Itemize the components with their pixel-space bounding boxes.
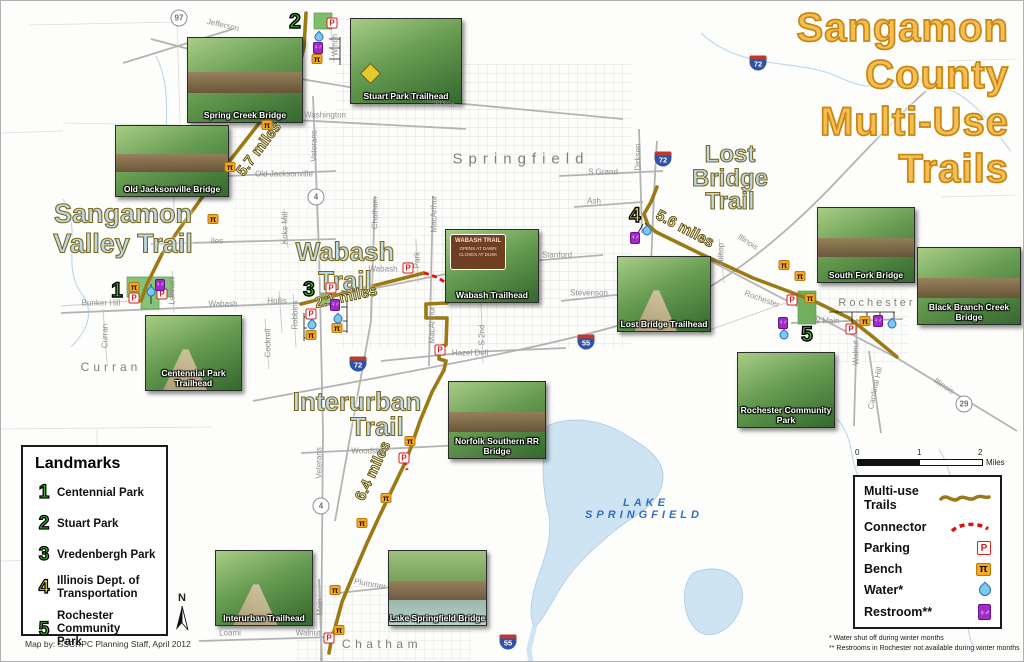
photo-caption: Spring Creek Bridge [188,110,302,120]
scale-unit: Miles [986,458,1005,467]
photo-caption: Wabash Trailhead [446,290,538,300]
photo-caption: Centennial Park Trailhead [146,368,241,388]
landmark-number: 1 [33,482,55,504]
sign-line: WABASH TRAIL [451,238,505,244]
legend-footnotes: * Water shut off during winter months **… [829,634,1020,653]
road-label: Main [316,598,325,615]
road-label: Wabash [208,300,237,309]
photo-caption: Lake Springfield Bridge [389,613,486,623]
landmark-marker-4: 4 [629,204,641,228]
road-label: Robbins [291,300,300,329]
photo-norfolk-southern-rr-bridge: Norfolk Southern RR Bridge [448,381,546,459]
legend-label: Connector [864,520,927,534]
parking-icon: P [977,541,991,555]
bench-icon: π [805,293,816,303]
photo-lake-springfield-bridge: Lake Springfield Bridge [388,550,487,626]
photo-stuart-park-trailhead: Stuart Park Trailhead [350,18,462,104]
road-label: Hollis [267,297,287,306]
title-line: Trails [797,146,1009,193]
scale-bar-segments [857,459,983,466]
landmark-marker-1: 1 [111,279,123,303]
scale-tick: 0 [855,448,859,457]
photo-caption: Interurban Trailhead [216,613,312,623]
city-label-chatham: Chatham [342,637,422,651]
road-label: Woodside [351,447,386,456]
photo-caption: Stuart Park Trailhead [351,91,461,101]
legend-label: Restroom** [864,605,932,619]
route-shield-29: 29 [956,396,973,413]
photo-caption: Rochester Community Park [738,405,834,425]
restroom-icon: ♀♂ [978,604,991,620]
parking-icon: P [324,633,335,644]
road-label: Hazel Dell [452,349,488,358]
photo-caption: Old Jacksonville Bridge [116,184,228,194]
road-label: MacArthur [428,307,437,344]
footnote-water: * Water shut off during winter months [829,634,1020,644]
road-label: Park [413,252,422,268]
photo-wabash-trailhead: WABASH TRAIL OPENS AT DAWN CLOSES AT DUS… [445,229,539,303]
parking-icon: P [326,283,337,294]
legend-item-restroom: Restroom** ♀♂ [864,604,991,620]
warning-sign-icon [360,63,381,84]
road-label: Winch [331,34,340,56]
road-label: Iles [211,237,223,246]
bench-icon: π [332,323,343,333]
photo-interurban-trailhead: Interurban Trailhead [215,550,313,626]
landmark-list-item: 1 Centennial Park [33,482,158,504]
title-line: Multi-Use [797,99,1009,146]
wabash-trail-sign: WABASH TRAIL OPENS AT DAWN CLOSES AT DUS… [450,234,506,270]
road-label: Veterans [315,447,324,479]
road-label: Chatham [371,197,380,229]
trail-label-lost-bridge: Trail [705,188,754,216]
legend-item-connector: Connector [864,519,991,534]
bench-icon: π [129,282,140,292]
bench-icon: π [334,625,345,635]
bench-icon: π [779,260,790,270]
legend-label: Water* [864,583,903,597]
road-label: Old Jacksonville [255,170,313,179]
bench-icon: π [208,214,219,224]
route-shield-4: 4 [313,498,330,515]
parking-icon: P [846,324,857,335]
landmark-number: 3 [33,544,55,566]
photo-old-jacksonville-bridge: Old Jacksonville Bridge [115,125,229,197]
landmark-marker-3: 3 [303,278,315,302]
landmark-label: Centennial Park [55,487,144,500]
road-label: Curran [101,324,110,348]
bench-icon: π [225,162,236,172]
road-label: Stevenson [570,289,608,298]
bench-icon: π [262,120,273,130]
photo-rochester-community-park: Rochester Community Park [737,352,835,428]
legend-item-bench: Bench π [864,562,991,576]
legend-label: Bench [864,562,902,576]
landmark-marker-2: 2 [289,10,301,34]
bench-icon: π [405,436,416,446]
road-label: Cockrell [264,329,273,358]
scale-bar: 0 1 2 Miles [853,448,1023,473]
bench-icon: π [976,563,991,576]
legend-panel: Multi-use Trails Connector Parking P Ben… [853,475,1002,629]
photo-caption: Lost Bridge Trailhead [618,319,710,329]
city-label-springfield: Springfield [453,151,590,168]
map-credit: Map by: SSCRPC Planning Staff, April 201… [25,639,191,649]
bench-icon: π [860,316,871,326]
connector-dashes-icon [949,519,991,534]
trail-label-wabash: Wabash [296,237,395,268]
landmark-label: Stuart Park [55,518,118,531]
restroom-icon: ♀♂ [873,315,883,327]
landmark-marker-5: 5 [801,323,813,347]
legend-item-parking: Parking P [864,541,991,555]
road-label: Stanford [542,251,572,260]
north-arrow [176,606,188,630]
trail-label-sangamon-valley: Sangamon [54,199,192,230]
road-label: Koke Mill [281,212,290,244]
landmark-label: Vredenbergh Park [55,549,155,562]
north-label: N [178,592,186,604]
road-label: W Main [812,317,839,326]
city-label-rochester: Rochester [838,297,915,309]
photo-caption: Black Branch Creek Bridge [918,302,1020,322]
landmarks-title: Landmarks [35,455,158,473]
footnote-restroom: ** Restrooms in Rochester not available … [829,644,1020,654]
trail-line-icon [939,490,991,506]
road-label: Hilltop [717,243,726,265]
restroom-icon: ♀♂ [630,232,640,244]
route-shield-4: 4 [308,189,325,206]
road-label: Ash [587,197,601,206]
landmark-number: 5 [33,619,55,641]
lake-label: LAKE [623,497,669,509]
city-label-curran: Curran [81,360,142,374]
parking-icon: P [435,345,446,356]
bench-icon: π [306,330,317,340]
parking-icon: P [327,18,338,29]
road-label: S 2nd [478,325,487,346]
water-icon [977,582,994,599]
bench-icon: π [795,271,806,281]
photo-centennial-park-trailhead: Centennial Park Trailhead [145,315,242,391]
trail-label-sangamon-valley: Valley Trail [53,229,193,260]
bench-icon: π [312,54,323,64]
photo-lost-bridge-trailhead: Lost Bridge Trailhead [617,256,711,332]
photo-caption: South Fork Bridge [818,270,914,280]
road-label: Walnut [296,629,321,638]
bench-icon: π [357,518,368,528]
title-line: Sangamon [797,5,1009,52]
road-label: Loami [219,629,241,638]
route-shield-97: 97 [171,10,188,27]
road-label: S Grand [588,168,618,177]
trail-map-canvas: Spring Creek Bridge Stuart Park Trailhea… [0,0,1024,662]
landmark-label: Illinois Dept. of Transportation [55,575,153,601]
parking-icon: P [787,295,798,306]
legend-label: Parking [864,541,910,555]
parking-icon: P [403,263,414,274]
photo-south-fork-bridge: South Fork Bridge [817,207,915,283]
landmark-list-item: 4 Illinois Dept. of Transportation [33,575,158,601]
landmark-number: 2 [33,513,55,535]
road-label: MacArthur [430,196,439,233]
photo-black-branch-creek-bridge: Black Branch Creek Bridge [917,247,1021,325]
road-label: Veterans [310,130,319,162]
photo-caption: Norfolk Southern RR Bridge [449,436,545,456]
landmark-list-item: 3 Vredenbergh Park [33,544,158,566]
bench-icon: π [330,585,341,595]
title-line: County [797,52,1009,99]
parking-icon: P [129,293,140,304]
restroom-icon: ♀♂ [313,42,323,54]
road-label: Lenhart [168,277,177,304]
restroom-icon: ♀♂ [155,279,165,291]
photo-spring-creek-bridge: Spring Creek Bridge [187,37,303,123]
road-label: Wabash [368,265,397,274]
restroom-icon: ♀♂ [330,299,340,311]
legend-label: Multi-use Trails [864,484,936,512]
scale-tick: 2 [978,448,982,457]
road-label: Washington [304,111,346,120]
sign-line: CLOSES AT DUSK [451,252,505,257]
landmark-number: 4 [33,577,55,599]
legend-item-water: Water* [864,583,991,597]
road-label: Walnut [852,341,861,366]
parking-icon: P [399,453,410,464]
map-title: Sangamon County Multi-Use Trails [797,5,1009,193]
lake-label: SPRINGFIELD [585,509,703,521]
restroom-icon: ♀♂ [778,317,788,329]
landmarks-panel: Landmarks 1 Centennial Park 2 Stuart Par… [21,445,168,636]
scale-tick: 1 [917,448,921,457]
trail-label-interurban: Trail [350,412,403,443]
landmark-list-item: 2 Stuart Park [33,513,158,535]
sign-line: OPENS AT DAWN [451,246,505,251]
road-label: Dirksen [634,143,643,170]
legend-item-trails: Multi-use Trails [864,484,991,512]
bench-icon: π [381,493,392,503]
